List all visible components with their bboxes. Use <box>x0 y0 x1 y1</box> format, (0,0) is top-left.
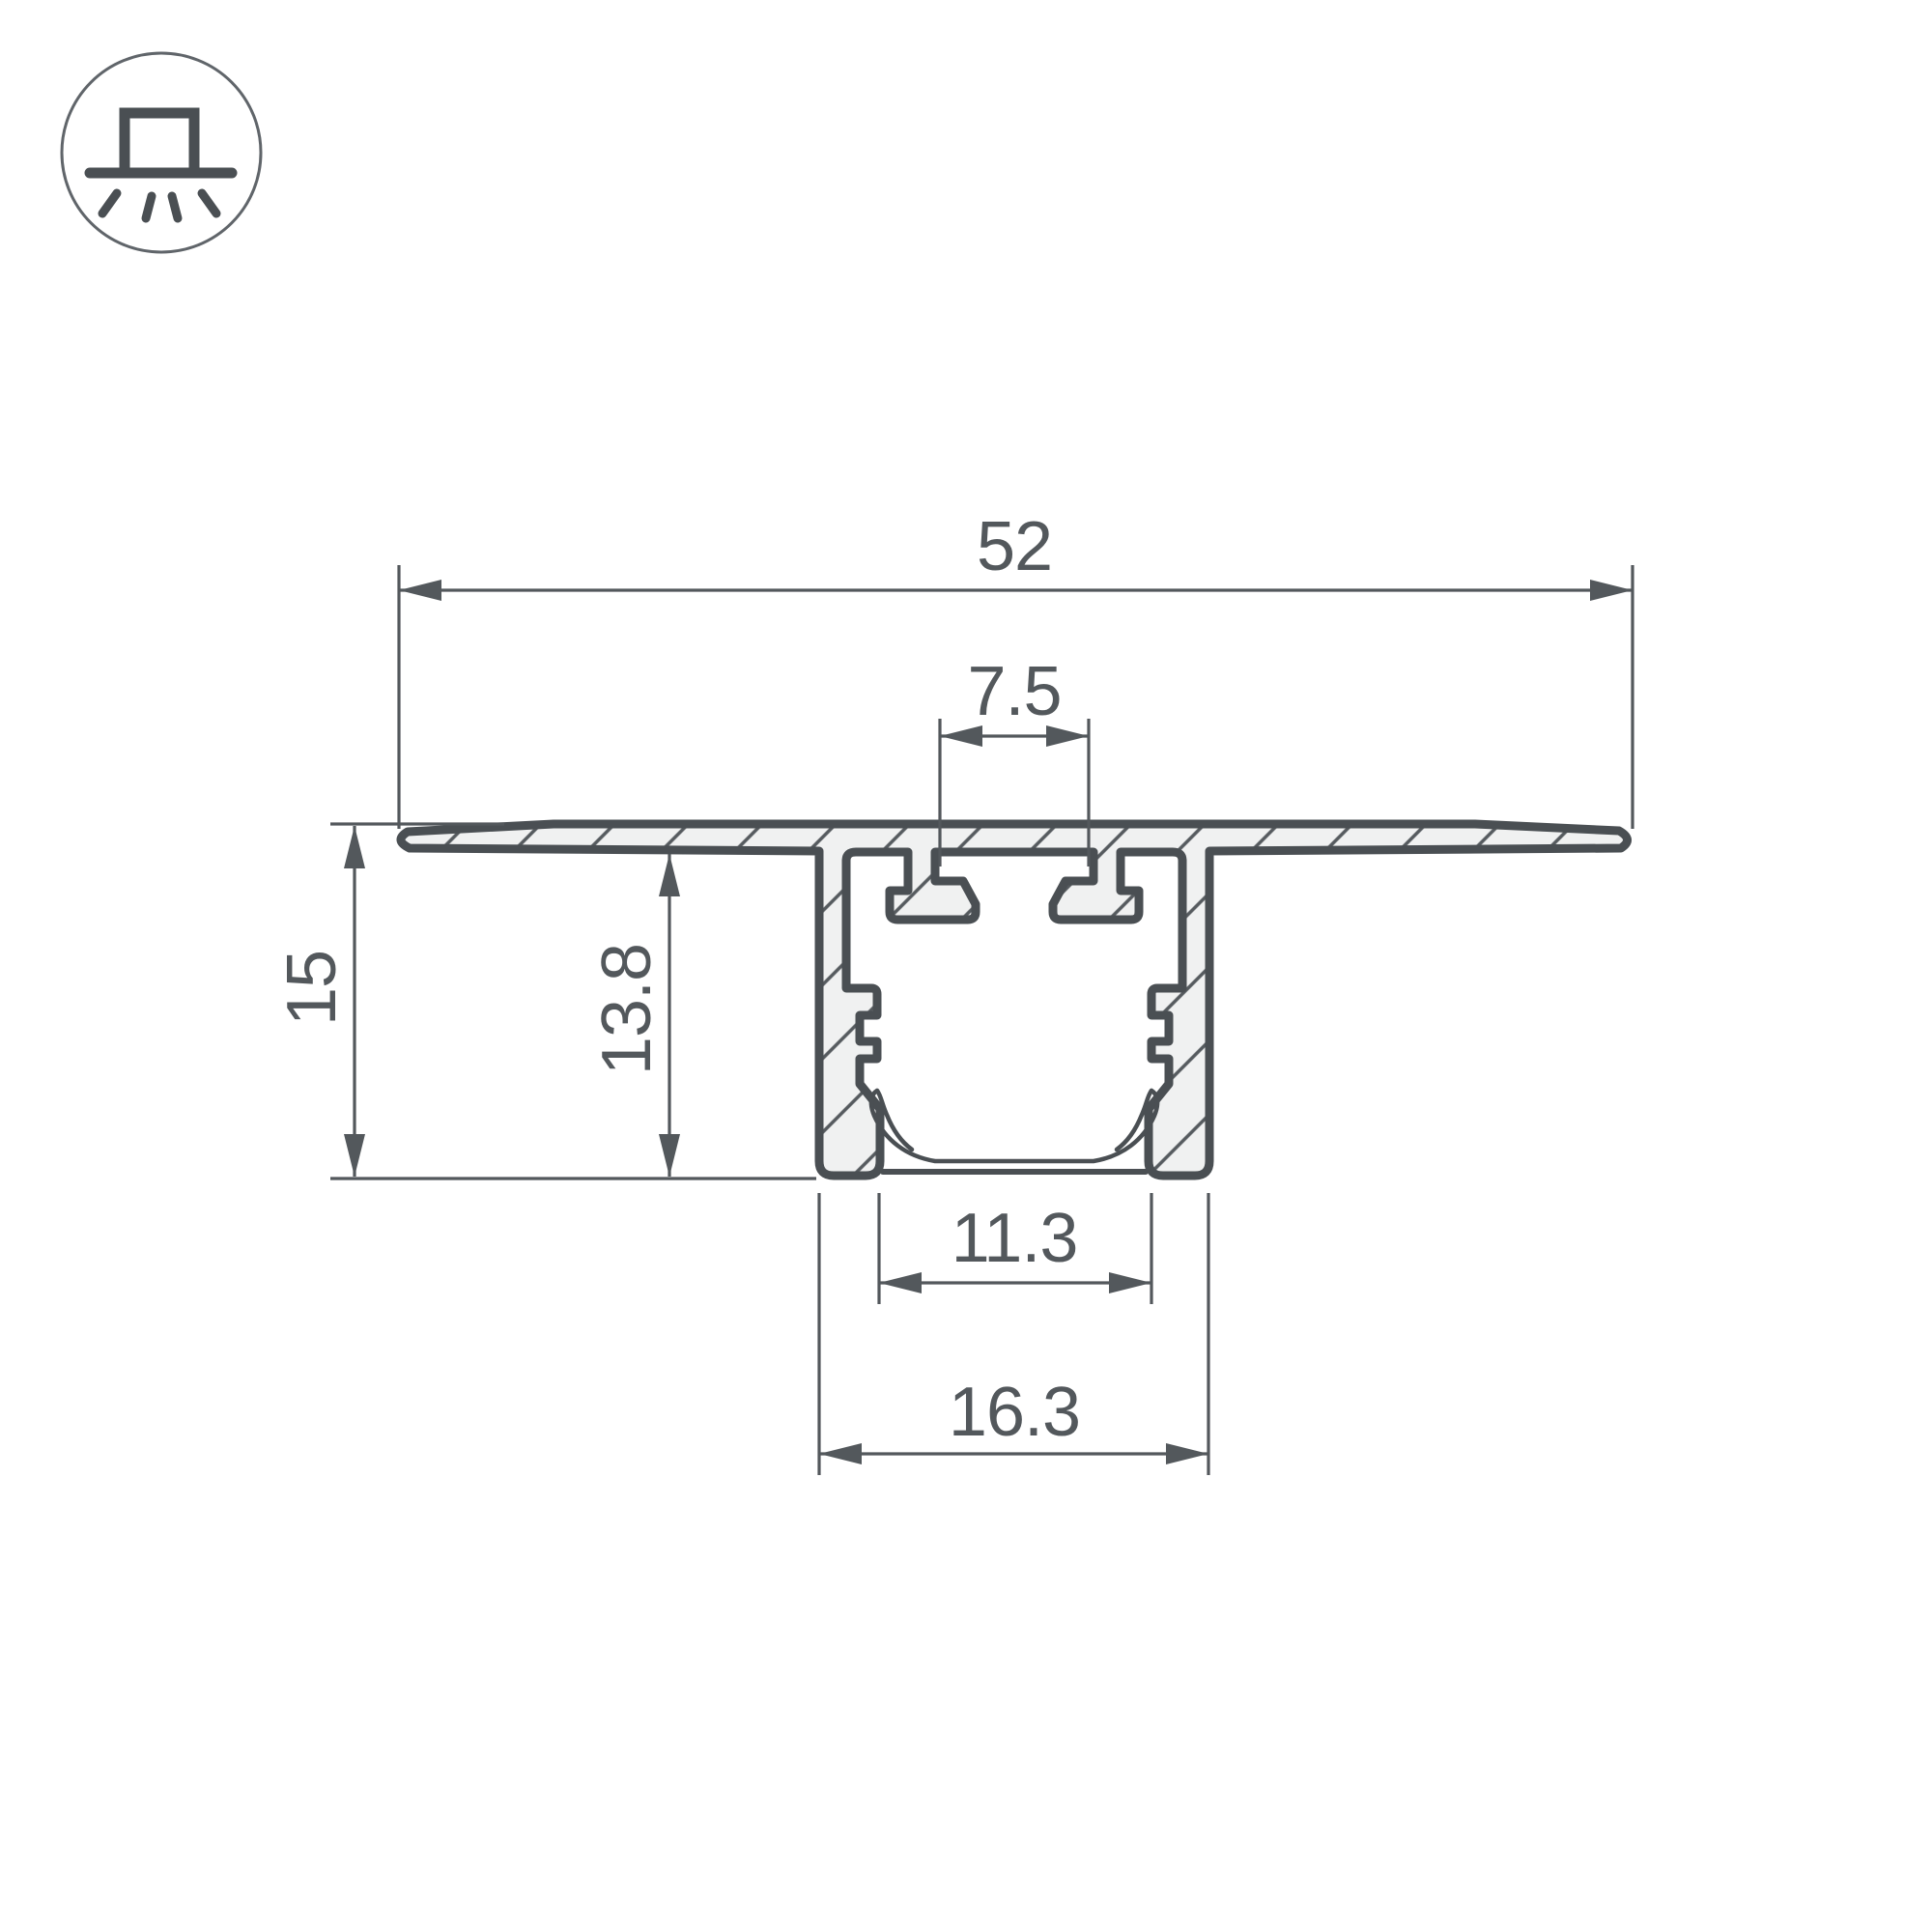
profile-cross-section <box>401 824 1628 1176</box>
diffuser-lens <box>871 1091 1157 1172</box>
dim-label-inner-depth: 13.8 <box>588 944 666 1075</box>
icon-fixture-box <box>125 113 194 173</box>
recessed-light-icon <box>62 53 261 252</box>
arrowhead <box>659 854 680 896</box>
arrowhead <box>1109 1272 1151 1293</box>
arrowhead <box>819 1443 862 1464</box>
technical-drawing-canvas: 52 7.5 15 13.8 11.3 <box>0 0 1932 1932</box>
arrowhead <box>1166 1443 1208 1464</box>
arrowhead <box>344 1134 365 1177</box>
drawing-page: 52 7.5 15 13.8 11.3 <box>0 0 1932 1932</box>
dim-inner-width: 11.3 <box>879 1193 1151 1304</box>
arrowhead <box>399 580 441 601</box>
arrowhead <box>659 1134 680 1177</box>
icon-light-rays <box>102 193 216 218</box>
arrowhead <box>344 826 365 868</box>
dim-label-top-slot: 7.5 <box>967 653 1061 730</box>
dim-label-channel-width: 16.3 <box>949 1374 1080 1451</box>
icon-circle <box>62 53 261 252</box>
dim-label-total-height: 15 <box>273 951 351 1026</box>
dim-label-total-width: 52 <box>977 508 1052 585</box>
dim-label-inner-width: 11.3 <box>952 1200 1078 1277</box>
arrowhead <box>1590 580 1633 601</box>
arrowhead <box>879 1272 922 1293</box>
dim-total-height: 15 <box>273 824 816 1179</box>
dim-inner-depth: 13.8 <box>588 854 680 1177</box>
